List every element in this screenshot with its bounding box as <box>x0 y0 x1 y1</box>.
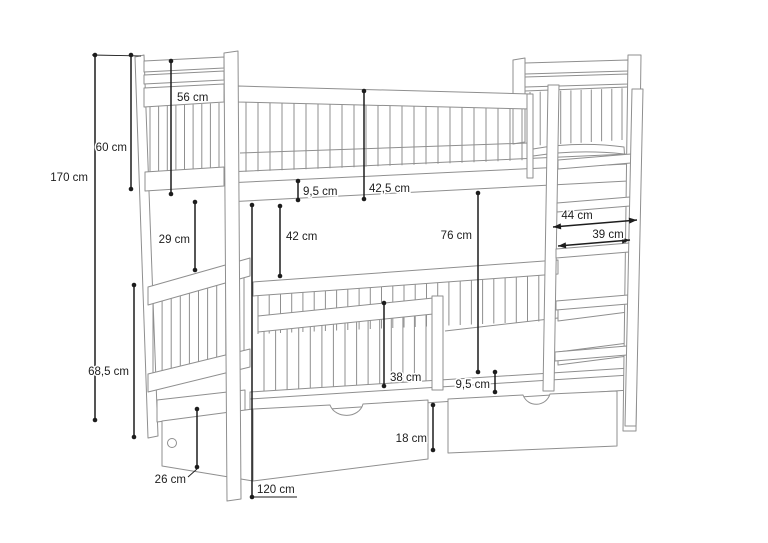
front-left-post <box>224 51 241 501</box>
dim-upper-frame-thickness-label: 9,5 cm <box>303 186 338 198</box>
dim-floor-to-upper-frame-label: 120 cm <box>257 484 295 496</box>
upper-rear-slats <box>530 88 622 146</box>
dim-headboard-gap-label: 29 cm <box>159 234 190 246</box>
dim-upper-headboard-height-endpoint <box>129 53 134 58</box>
dim-upper-headboard-height-label: 60 cm <box>96 142 127 154</box>
dim-floor-clearance-label: 26 cm <box>155 474 186 486</box>
dim-upper-guardrail-height-label: 56 cm <box>177 92 208 104</box>
dim-upper-rail-to-frame-endpoint <box>362 89 367 94</box>
dim-headboard-gap-endpoint <box>193 200 198 205</box>
upper-left-headboard-slats <box>150 103 219 172</box>
dim-lower-guardrail-height-label: 38 cm <box>390 372 421 384</box>
right-rear-rail-top-edge <box>525 87 628 91</box>
slat-lines <box>530 88 622 146</box>
dim-upper-rail-to-frame-label: 42,5 cm <box>369 183 410 195</box>
upper-front-rail-endcap <box>527 94 533 178</box>
right-drawer-front <box>448 391 617 453</box>
ladder-left-rail <box>543 85 559 391</box>
dim-lower-section-height-label: 68,5 cm <box>88 366 129 378</box>
dim-floor-clearance-endpoint <box>195 465 200 470</box>
extension-line-top-extension <box>92 55 141 56</box>
lower-mattress-edge <box>445 318 558 331</box>
dim-lower-guardrail-height-endpoint <box>382 301 387 306</box>
right-headboard-rail-top <box>525 60 628 74</box>
dim-ladder-width-inner-label: 39 cm <box>592 229 623 241</box>
dim-upper-headboard-height-endpoint <box>129 187 134 192</box>
dim-lower-frame-thickness-label: 9,5 cm <box>455 379 490 391</box>
dim-bunk-clearance-label: 76 cm <box>441 230 472 242</box>
left-headboard-rail-2 <box>144 71 224 84</box>
dim-lower-guardrail-height-endpoint <box>382 384 387 389</box>
dim-lower-frame-thickness-endpoint <box>493 390 498 395</box>
dim-drawer-height-endpoint <box>431 448 436 453</box>
technical-drawing-page: 170 cm60 cm56 cm9,5 cm42,5 cm29 cm42 cm7… <box>0 0 768 543</box>
dim-lower-section-height-endpoint <box>132 435 137 440</box>
dim-bunk-clearance-endpoint <box>476 370 481 375</box>
dim-bunk-clearance-left-label: 42 cm <box>286 231 317 243</box>
dim-lower-section-height-endpoint <box>132 283 137 288</box>
dim-bunk-clearance-left-endpoint <box>278 274 283 279</box>
bunk-bed-diagram: 170 cm60 cm56 cm9,5 cm42,5 cm29 cm42 cm7… <box>0 0 768 543</box>
dim-bunk-clearance-left-endpoint <box>278 204 283 209</box>
dim-floor-to-upper-frame-endpoint <box>250 203 255 208</box>
lower-front-rail-endcap <box>432 296 443 390</box>
dim-upper-frame-thickness-endpoint <box>296 198 301 203</box>
dim-upper-rail-to-frame-endpoint <box>362 197 367 202</box>
dim-drawer-height-label: 18 cm <box>396 433 427 445</box>
dim-headboard-gap-endpoint <box>193 268 198 273</box>
bed-structure <box>135 51 643 501</box>
dim-upper-guardrail-height-endpoint <box>169 59 174 64</box>
upper-mattress-line-behind-slats <box>240 143 528 153</box>
dim-upper-frame-thickness-endpoint <box>296 179 301 184</box>
dim-upper-guardrail-height-endpoint <box>169 192 174 197</box>
slat-lines <box>150 103 219 172</box>
dim-overall-height-endpoint <box>93 418 98 423</box>
dim-ladder-width-outer-label: 44 cm <box>561 210 592 222</box>
dim-floor-clearance-endpoint <box>195 407 200 412</box>
lower-rear-rail <box>253 260 558 296</box>
caster-wheel <box>168 439 177 448</box>
dim-overall-height-label: 170 cm <box>50 172 88 184</box>
dim-overall-height-endpoint <box>93 53 98 58</box>
left-headboard-rail-bottom <box>145 167 224 191</box>
dim-floor-to-upper-frame-endpoint <box>250 495 255 500</box>
left-headboard-rail-top <box>144 57 224 72</box>
dim-bunk-clearance-endpoint <box>476 191 481 196</box>
dim-drawer-height-endpoint <box>431 403 436 408</box>
dim-lower-frame-thickness-endpoint <box>493 370 498 375</box>
right-headboard-rail-2 <box>525 74 628 87</box>
